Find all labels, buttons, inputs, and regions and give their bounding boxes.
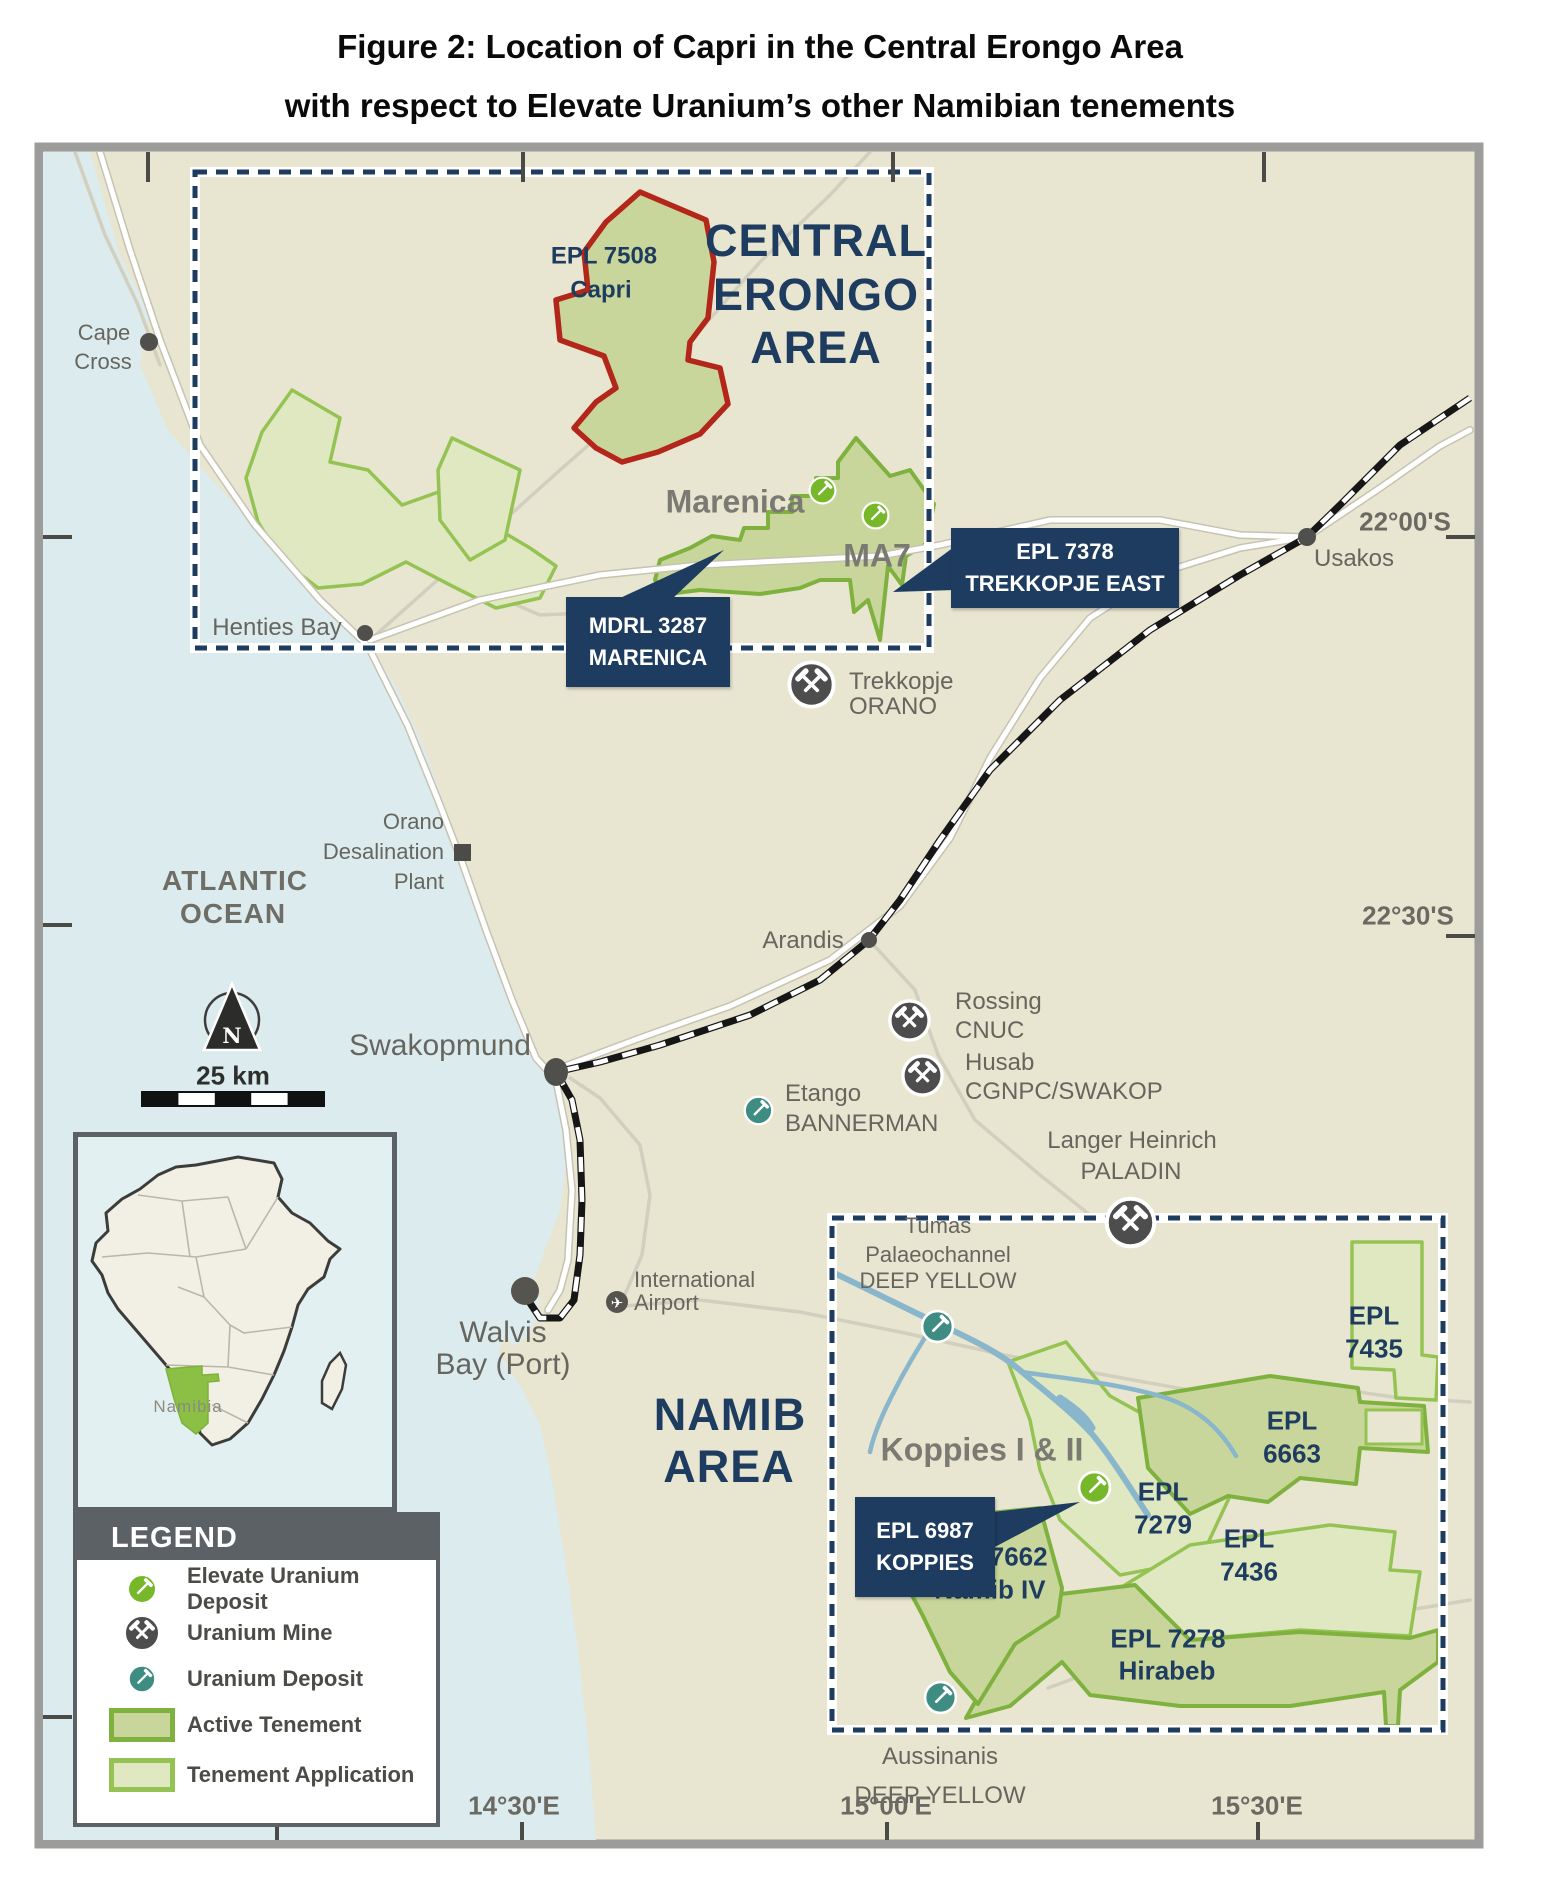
legend-label-tenement-application: Tenement Application	[187, 1762, 414, 1788]
legend: LEGEND Elevate Uranium Deposit Uranium M…	[73, 1512, 440, 1827]
walvis-bay-dot	[511, 1277, 539, 1305]
etango-deposit-icon	[745, 1097, 773, 1125]
desalination-plant-marker	[454, 844, 471, 861]
legend-item-uranium-deposit: Uranium Deposit	[77, 1662, 436, 1696]
uranium-mine-icon	[121, 1612, 163, 1654]
tenement-application-swatch	[109, 1758, 175, 1792]
tumas-deposit-icon	[922, 1311, 953, 1342]
usakos-dot	[1298, 528, 1316, 546]
trekkopje-mine-icon	[789, 662, 833, 706]
legend-label-elevate-deposit: Elevate Uranium Deposit	[187, 1563, 436, 1615]
figure-page: { "title": { "line1": "Figure 2: Locatio…	[0, 0, 1560, 1890]
aussinanis-deposit-icon	[925, 1682, 956, 1713]
africa-inset-svg	[78, 1137, 392, 1507]
airport-icon: ✈	[606, 1291, 628, 1313]
epl-7378-trekkopje-east-callout: EPL 7378 TREKKOPJE EAST	[951, 528, 1179, 608]
svg-text:✈: ✈	[611, 1294, 624, 1312]
epl-7378-line1: EPL 7378	[1016, 536, 1113, 568]
epl-6987-koppies-callout: EPL 6987 KOPPIES	[855, 1497, 995, 1597]
mdrl-3287-line1: MDRL 3287	[589, 610, 707, 642]
legend-item-elevate-deposit: Elevate Uranium Deposit	[77, 1572, 436, 1606]
husab-mine-icon	[903, 1056, 942, 1095]
legend-label-uranium-deposit: Uranium Deposit	[187, 1666, 363, 1692]
langer-heinrich-mine-icon	[1107, 1199, 1155, 1247]
mdrl-3287-line2: MARENICA	[589, 642, 708, 674]
legend-label-uranium-mine: Uranium Mine	[187, 1620, 332, 1646]
koppies-deposit-icon	[1079, 1472, 1110, 1503]
henties-bay-dot	[357, 625, 373, 641]
swakopmund-dot	[544, 1058, 568, 1086]
cape-cross-dot	[140, 333, 158, 351]
mdrl-3287-marenica-callout: MDRL 3287 MARENICA	[566, 597, 730, 687]
marenica-deposit-icon	[810, 478, 836, 504]
legend-header: LEGEND	[77, 1516, 436, 1560]
arandis-dot	[861, 932, 877, 948]
epl-6987-line2: KOPPIES	[876, 1547, 974, 1579]
madagascar-shape	[322, 1353, 346, 1409]
epl-7378-line2: TREKKOPJE EAST	[965, 568, 1164, 600]
elevate-uranium-deposit-icon	[125, 1572, 159, 1606]
rossing-mine-icon	[890, 1001, 929, 1040]
legend-item-tenement-application: Tenement Application	[77, 1758, 436, 1792]
ma7-deposit-icon	[863, 503, 889, 529]
legend-label-active-tenement: Active Tenement	[187, 1712, 361, 1738]
epl-6987-line1: EPL 6987	[876, 1515, 973, 1547]
legend-item-active-tenement: Active Tenement	[77, 1708, 436, 1742]
active-tenement-swatch	[109, 1708, 175, 1742]
compass-n: N	[222, 1023, 241, 1048]
legend-item-uranium-mine: Uranium Mine	[77, 1616, 436, 1650]
africa-inset-map: Namibia	[73, 1132, 397, 1512]
uranium-deposit-icon	[126, 1663, 158, 1695]
scale-bar	[142, 1092, 324, 1106]
epl-6663-exclusion	[1366, 1410, 1422, 1444]
africa-outline	[92, 1157, 340, 1445]
